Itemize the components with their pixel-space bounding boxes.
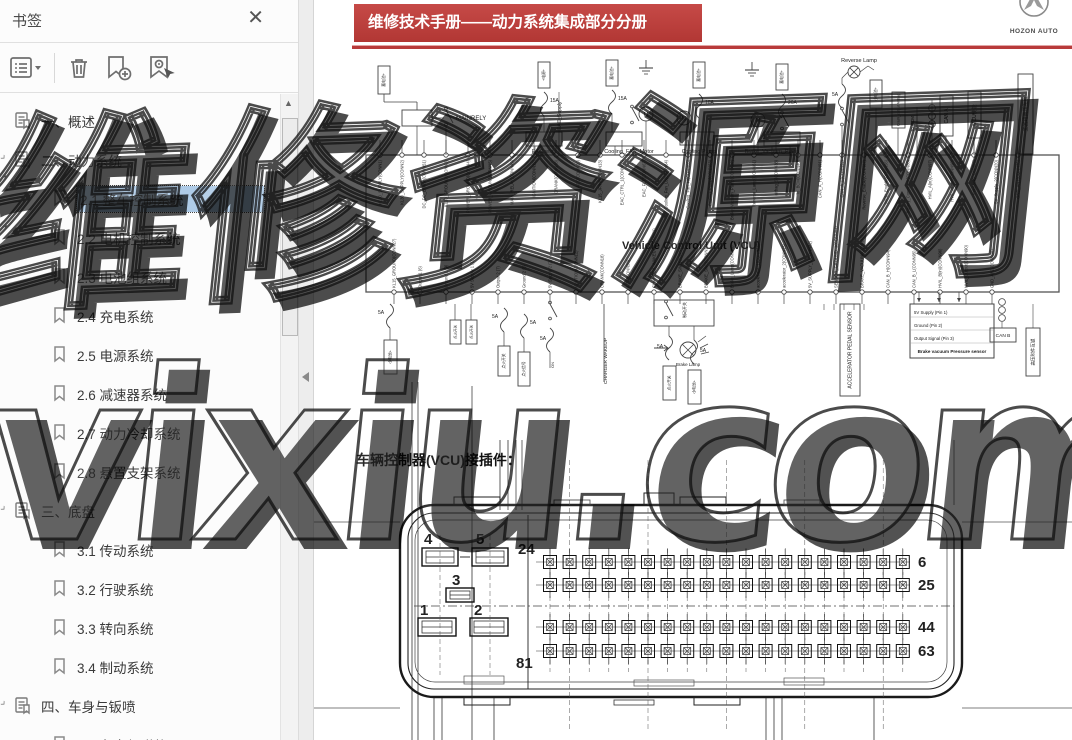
svg-text:ACC(CONN20): ACC(CONN20) [626, 259, 631, 288]
svg-text:63: 63 [918, 643, 935, 660]
bookmark-item[interactable]: 2.7 动力冷却系统 [0, 413, 280, 452]
svg-text:5A: 5A [378, 310, 385, 316]
svg-text:Vehicle Control Unit (VCU): Vehicle Control Unit (VCU) [622, 240, 760, 252]
vcu-connector-diagram: 4531224816254463 [314, 440, 1072, 740]
bookmark-item[interactable]: 2.3 电池组系统 [0, 257, 280, 296]
page-header-banner: 维修技术手册——动力系统集成部分分册 [354, 4, 702, 42]
svg-text:CAN_A_L(CONN92): CAN_A_L(CONN92) [840, 159, 845, 197]
svg-text:IGNITION(CONN12): IGNITION(CONN12) [532, 159, 537, 197]
svg-text:HVIL_Output(CONN90): HVIL_Output(CONN90) [964, 244, 969, 288]
bookmark-flag-icon [51, 423, 68, 442]
bookmark-item[interactable]: 3.4 制动系统 [0, 647, 280, 686]
svg-text:Output 2 (7): Output 2 (7) [496, 266, 501, 288]
svg-text:Battery_Connector(CONN88): Battery_Connector(CONN88) [906, 159, 911, 213]
svg-text:1: 1 [420, 602, 428, 619]
document-page: 维修技术手册——动力系统集成部分分册 HOZON AUTO Vehicle Co… [314, 0, 1072, 740]
svg-text:KL30_SUPPLY(CONN1): KL30_SUPPLY(CONN1) [378, 159, 383, 204]
svg-text:2: 2 [474, 602, 482, 619]
svg-text:5V Supply 1 (1): 5V Supply 1 (1) [470, 259, 475, 288]
svg-text:4: 4 [424, 531, 433, 548]
svg-text:KL15_JP/HR(CONN13): KL15_JP/HR(CONN13) [598, 159, 603, 203]
svg-text:81: 81 [516, 655, 533, 672]
bookmark-item[interactable]: 2.5 电源系统 [0, 335, 280, 374]
svg-text:5A: 5A [540, 336, 547, 342]
bookmark-item[interactable]: 4.1 车身与附件 [0, 725, 280, 740]
svg-text:EAC_CTRL_1(CONN66): EAC_CTRL_1(CONN66) [620, 159, 625, 205]
svg-text:M: M [756, 118, 761, 124]
section-page-icon [13, 150, 32, 169]
svg-text:CRANK(CONN18): CRANK(CONN18) [600, 254, 605, 288]
svg-text:To BCM: To BCM [910, 116, 915, 132]
bookmark-label[interactable]: 一、概述 [41, 111, 95, 131]
svg-text:HVIL_B(in)(CONN96): HVIL_B(in)(CONN96) [938, 248, 943, 288]
svg-text:EAC_FLT(CONN67): EAC_FLT(CONN67) [642, 159, 647, 197]
svg-text:Ground 1 (9): Ground 1 (9) [444, 264, 449, 288]
bookmark-label[interactable]: 4.1 车身与附件 [77, 735, 167, 740]
svg-text:ACC(CONN20): ACC(CONN20) [576, 159, 581, 188]
svg-text:Reverse_Lamp(CONN61): Reverse_Lamp(CONN61) [752, 159, 757, 207]
svg-text:HVIL_A(in)(CONN97): HVIL_A(in)(CONN97) [928, 159, 933, 199]
svg-text:DC_DC_Enable(CONN51): DC_DC_Enable(CONN51) [422, 159, 427, 208]
panel-title: 书签 [12, 10, 42, 31]
svg-text:制动开关: 制动开关 [681, 302, 687, 318]
bookmark-list-menu-icon[interactable] [8, 54, 42, 82]
svg-text:蓄电池+: 蓄电池+ [381, 72, 386, 86]
bookmark-label[interactable]: 四、车身与钣喷 [41, 696, 136, 716]
svg-text:POWER_GROUND(CONN5): POWER_GROUND(CONN5) [488, 159, 493, 213]
scroll-up-icon[interactable]: ▲ [284, 98, 293, 108]
svg-text:25: 25 [918, 577, 935, 594]
scrollbar-thumb[interactable] [282, 118, 298, 336]
bookmark-label[interactable]: 二、动力系统 [41, 150, 122, 170]
svg-text:M: M [644, 112, 649, 118]
svg-text:Cooling_FAN_Motor: Cooling_FAN_Motor [604, 149, 654, 155]
svg-text:ACCELERATOR PEDAL SENSOR: ACCELERATOR PEDAL SENSOR [848, 311, 854, 389]
svg-text:IGNITION(CONN12): IGNITION(CONN12) [574, 250, 579, 288]
svg-text:CAN_B_H(CONN94): CAN_B_H(CONN94) [886, 249, 891, 288]
svg-text:airbag_S(CONN38): airbag_S(CONN38) [774, 159, 779, 195]
bookmark-item[interactable]: 2.8 悬置支架系统 [0, 452, 280, 491]
section-page-icon [13, 111, 32, 130]
section-page-icon [13, 696, 32, 715]
svg-text:5V Supply (Pin 1): 5V Supply (Pin 1) [914, 310, 948, 315]
toolbar-separator [54, 53, 55, 83]
bookmark-item[interactable]: 2.6 减速器系统 [0, 374, 280, 413]
bookmark-label[interactable]: 2.2 电机控制系统 [77, 228, 181, 248]
svg-text:BRAKE_SW1(CONN10): BRAKE_SW1(CONN10) [678, 243, 683, 288]
svg-text:小电池+: 小电池+ [691, 379, 696, 393]
svg-text:MAINRELY: MAINRELY [456, 116, 486, 122]
svg-text:accelerator_1(CONN14): accelerator_1(CONN14) [756, 243, 761, 288]
bookmark-item[interactable]: 2.2 电机控制系统 [0, 218, 280, 257]
svg-text:Cooling Pump: Cooling Pump [682, 149, 717, 155]
hozon-logo-text: HOZON AUTO [1002, 28, 1066, 35]
panel-splitter[interactable] [298, 0, 314, 740]
bookmark-label[interactable]: 2.8 悬置支架系统 [77, 462, 181, 482]
svg-text:5: 5 [476, 531, 484, 548]
svg-text:EAC_Supply: EAC_Supply [557, 101, 563, 130]
svg-text:CRANK(CONN18): CRANK(CONN18) [554, 159, 559, 193]
bookmarks-toolbar [0, 43, 298, 93]
svg-text:5V_Supply_2(CONN20): 5V_Supply_2(CONN20) [994, 159, 999, 203]
svg-text:Brake Lamp: Brake Lamp [676, 362, 701, 367]
svg-text:KL15_GROUND(CONN27): KL15_GROUND(CONN27) [392, 238, 397, 288]
bookmark-flag-icon [51, 462, 68, 481]
svg-text:点火开关: 点火开关 [666, 375, 671, 390]
bookmark-item[interactable]: 2.4 充电系统 [0, 296, 280, 335]
bookmark-label[interactable]: 3.2 行驶系统 [77, 579, 154, 599]
bookmark-flag-icon [51, 579, 68, 598]
svg-text:To_BCM(CONN40): To_BCM(CONN40) [796, 159, 801, 195]
svg-text:SENSOR_GROUND_1(CONN84): SENSOR_GROUND_1(CONN84) [834, 226, 839, 288]
vcu-wiring-diagram: Vehicle Control Unit (VCU)KL30_SUPPLY(CO… [354, 52, 1066, 440]
svg-text:蓄电池+: 蓄电池+ [696, 67, 701, 81]
svg-text:5A: 5A [492, 314, 499, 320]
bookmark-flag-icon [51, 735, 68, 740]
svg-text:+电源+: +电源+ [541, 68, 546, 81]
svg-text:主回路高压互锁: 主回路高压互锁 [1022, 96, 1029, 131]
bookmarks-tree: 一、概述›二、动力系统2.1 整车控制系统2.2 电机控制系统2.3 电池组系统… [0, 93, 280, 740]
bookmark-item[interactable]: 3.3 转向系统 [0, 608, 280, 647]
svg-text:5V_SUPPLY_1(CONN82): 5V_SUPPLY_1(CONN82) [808, 240, 813, 288]
bookmark-flag-icon [51, 657, 68, 676]
svg-text:KL30_GROUND(CONN3): KL30_GROUND(CONN3) [444, 159, 449, 207]
hozon-logo-icon [1014, 0, 1054, 22]
svg-text:Cooling_Pump(CONN63): Cooling_Pump(CONN63) [708, 159, 713, 206]
svg-text:GND_AN2(CONN36): GND_AN2(CONN36) [990, 249, 995, 288]
bookmark-label[interactable]: 2.3 电池组系统 [77, 267, 167, 287]
svg-text:HVIL_A(out)(CONN98): HVIL_A(out)(CONN98) [950, 159, 955, 201]
svg-text:15A: 15A [618, 96, 628, 102]
bookmark-item[interactable]: 2.1 整车控制系统 [0, 179, 280, 218]
svg-text:Reverse_Enable(CONN87): Reverse_Enable(CONN87) [862, 159, 867, 209]
svg-text:Cooling_Fan_Hi(CONN65): Cooling_Fan_Hi(CONN65) [686, 159, 691, 208]
bookmark-label[interactable]: 2.4 充电系统 [77, 306, 154, 326]
svg-text:小电池+: 小电池+ [387, 349, 392, 363]
bookmarks-panel: 书签 ✕ [0, 0, 298, 740]
svg-text:5A: 5A [530, 320, 537, 326]
bookmark-flag-icon [51, 618, 68, 637]
bookmark-label[interactable]: 3.1 传动系统 [77, 540, 154, 560]
svg-text:5A: 5A [832, 92, 839, 98]
collapse-panel-icon[interactable] [302, 372, 309, 382]
svg-text:5A: 5A [657, 344, 664, 350]
svg-text:点火开关: 点火开关 [501, 353, 506, 368]
svg-text:Ground 2 (8): Ground 2 (8) [522, 264, 527, 288]
svg-text:MAIN_RELAY(CONN49): MAIN_RELAY(CONN49) [510, 159, 515, 205]
svg-text:小电池+: 小电池+ [873, 86, 878, 100]
svg-text:蓄电池+: 蓄电池+ [609, 65, 614, 79]
svg-text:Ground (Pin 2): Ground (Pin 2) [914, 323, 943, 328]
svg-text:高压附件互锁: 高压附件互锁 [1029, 338, 1036, 365]
bookmark-label[interactable]: 3.3 转向系统 [77, 618, 154, 638]
svg-text:CAN_B_L(CONN95): CAN_B_L(CONN95) [912, 250, 917, 288]
svg-text:CHARGER WAKEUP: CHARGER WAKEUP [603, 338, 609, 384]
bookmark-label[interactable]: 2.6 减速器系统 [77, 384, 167, 404]
svg-text:3: 3 [452, 572, 460, 589]
bookmark-flag-icon [51, 306, 68, 325]
sidebar-scrollbar[interactable]: ▲ [280, 94, 298, 740]
section-page-icon [13, 501, 32, 520]
svg-text:44: 44 [918, 619, 935, 636]
svg-text:10A: 10A [705, 100, 715, 106]
svg-text:Reverse Lamp: Reverse Lamp [841, 58, 877, 64]
svg-text:蓄电池+: 蓄电池+ [779, 69, 784, 83]
bookmark-label[interactable]: 2.7 动力冷却系统 [77, 423, 181, 443]
svg-text:ON: ON [550, 362, 555, 368]
svg-text:M: M [682, 116, 687, 122]
bookmarks-header: 书签 ✕ [0, 0, 298, 43]
bookmark-item[interactable]: 一、概述 [0, 101, 280, 140]
svg-text:Cooling_Fan_Lo(CONN64): Cooling_Fan_Lo(CONN64) [664, 159, 669, 209]
svg-text:点火信号: 点火信号 [521, 361, 526, 376]
hozon-logo: HOZON AUTO [1002, 0, 1066, 35]
bookmark-label[interactable]: 2.5 电源系统 [77, 345, 154, 365]
svg-text:Brake_Vacuum_Pump(CONN62): Brake_Vacuum_Pump(CONN62) [730, 159, 735, 220]
svg-text:6: 6 [918, 554, 926, 571]
svg-text:Brake vacuum Pressure sensor: Brake vacuum Pressure sensor [918, 349, 987, 354]
svg-text:KL30_SUPPLY(CONN2): KL30_SUPPLY(CONN2) [400, 159, 405, 204]
bookmark-item[interactable]: ›三、底盘 [0, 491, 280, 530]
svg-text:BRAKE_VACUUM(CONN93): BRAKE_VACUUM(CONN93) [860, 234, 865, 288]
bookmark-label[interactable]: 3.4 制动系统 [77, 657, 154, 677]
connector-caption: 车辆控制器(VCU)接插件： [356, 450, 521, 470]
bookmark-item[interactable]: ›二、动力系统 [0, 140, 280, 179]
svg-text:accelerator_2(CONN15): accelerator_2(CONN15) [782, 243, 787, 288]
svg-text:POWER_GROUND(CONN4): POWER_GROUND(CONN4) [466, 159, 471, 213]
bookmark-flag-icon [51, 267, 68, 286]
bookmark-flag-icon [51, 228, 68, 247]
bookmark-item[interactable]: 3.1 传动系统 [0, 530, 280, 569]
svg-text:5V Supply 2 (2): 5V Supply 2 (2) [548, 259, 553, 288]
svg-text:BRAKE_SW2(CONN11): BRAKE_SW2(CONN11) [704, 243, 709, 288]
bookmark-item[interactable]: ›四、车身与钣喷 [0, 686, 280, 725]
svg-text:Brake_Lamp(CONN60): Brake_Lamp(CONN60) [730, 245, 735, 288]
add-bookmark-icon[interactable] [103, 54, 135, 82]
close-panel-icon[interactable]: ✕ [247, 6, 264, 30]
svg-text:Output 1 (6): Output 1 (6) [418, 266, 423, 288]
bookmark-flag-icon [51, 345, 68, 364]
svg-text:24: 24 [518, 541, 535, 558]
svg-text:点火开关: 点火开关 [452, 325, 457, 339]
bookmark-flag-icon [51, 384, 68, 403]
bookmark-label[interactable]: 三、底盘 [41, 501, 95, 521]
bookmark-label[interactable]: 2.1 整车控制系统 [77, 186, 264, 212]
delete-bookmark-icon[interactable] [65, 54, 93, 82]
bookmark-flag-icon [51, 189, 68, 208]
svg-text:CAN_A_H(CONN91): CAN_A_H(CONN91) [818, 159, 823, 198]
svg-text:MCU_Enable(CONN56): MCU_Enable(CONN56) [884, 159, 889, 203]
locate-bookmark-icon[interactable] [145, 54, 177, 82]
bookmark-flag-icon [51, 540, 68, 559]
header-rule [352, 45, 1072, 49]
svg-text:GND_AN1(CONN35): GND_AN1(CONN35) [1016, 159, 1021, 198]
svg-text:CHARGER_WAKEUP(CONN21): CHARGER_WAKEUP(CONN21) [652, 228, 657, 288]
svg-text:Crash_output AirBag: Crash_output AirBag [896, 94, 900, 126]
svg-text:点火开关: 点火开关 [468, 325, 473, 339]
bookmark-item[interactable]: 3.2 行驶系统 [0, 569, 280, 608]
svg-text:20A: 20A [788, 100, 798, 106]
svg-text:Output Signal (Pin 3): Output Signal (Pin 3) [914, 336, 954, 341]
svg-text:CAN A: CAN A [944, 108, 950, 124]
svg-text:Interlock(CONN89): Interlock(CONN89) [972, 159, 977, 194]
svg-text:MCU使能: MCU使能 [971, 104, 978, 125]
svg-text:CAN B: CAN B [996, 333, 1011, 339]
